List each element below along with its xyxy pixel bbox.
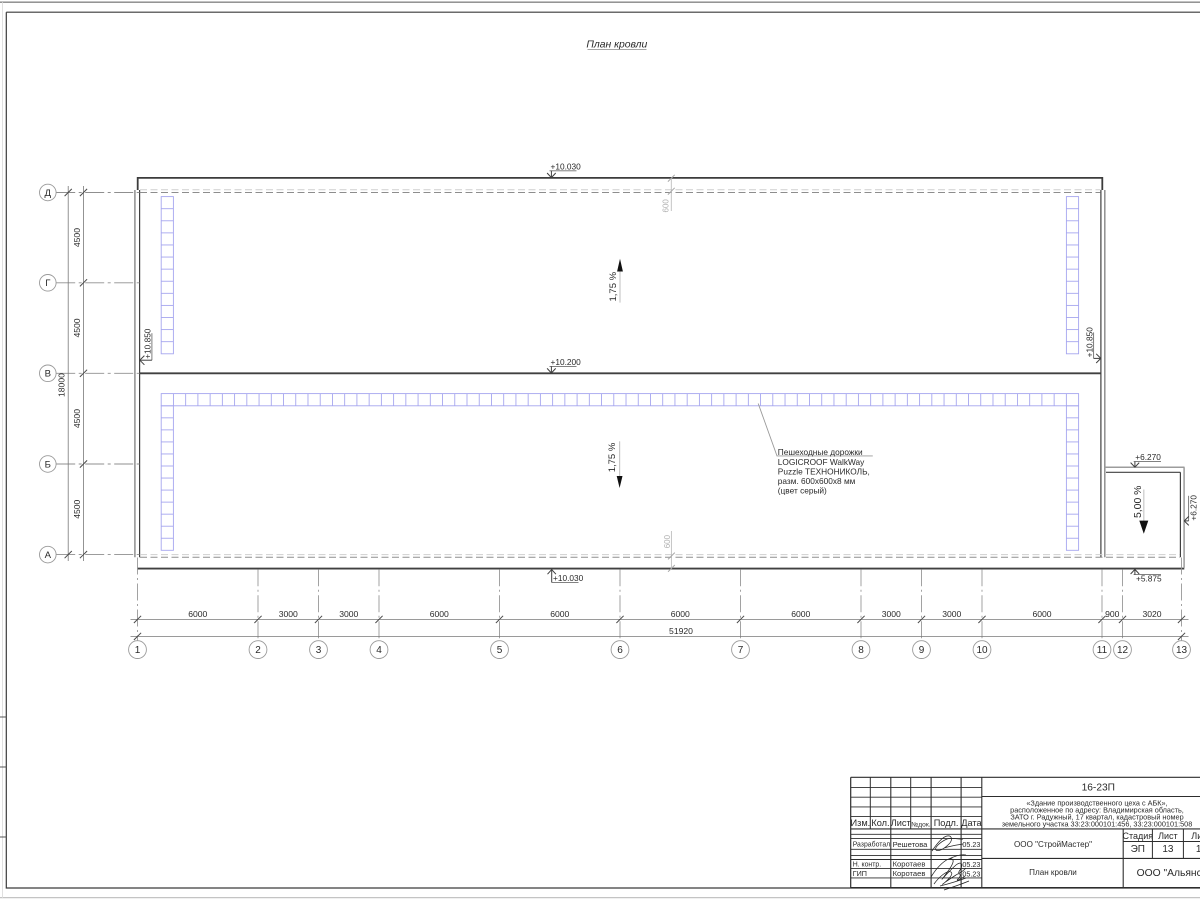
svg-text:05.23: 05.23 [962, 860, 980, 869]
svg-text:Д: Д [45, 188, 52, 199]
svg-text:11: 11 [1097, 645, 1108, 656]
svg-text:ГИП: ГИП [853, 869, 867, 878]
svg-text:+6.270: +6.270 [1188, 495, 1198, 521]
svg-text:8: 8 [858, 645, 864, 656]
svg-text:3000: 3000 [942, 609, 961, 619]
svg-text:600: 600 [662, 199, 671, 213]
svg-text:+5.875: +5.875 [1136, 574, 1162, 584]
svg-text:4500: 4500 [72, 318, 82, 337]
svg-text:1: 1 [1196, 844, 1200, 855]
svg-text:+10.030: +10.030 [553, 573, 584, 583]
svg-text:9: 9 [919, 645, 925, 656]
svg-text:3020: 3020 [1142, 609, 1161, 619]
svg-text:2: 2 [255, 645, 261, 656]
svg-text:05.23: 05.23 [962, 869, 980, 878]
svg-text:3: 3 [316, 645, 322, 656]
svg-text:+10.850: +10.850 [1084, 327, 1094, 358]
svg-text:Puzzle ТЕХНОНИКОЛЬ,: Puzzle ТЕХНОНИКОЛЬ, [778, 466, 870, 476]
svg-text:600: 600 [663, 534, 672, 548]
svg-text:51920: 51920 [669, 626, 693, 636]
svg-text:План кровли: План кровли [1029, 868, 1077, 877]
svg-text:4500: 4500 [72, 499, 82, 518]
svg-text:Коротаев: Коротаев [893, 869, 926, 878]
svg-text:6000: 6000 [671, 609, 690, 619]
svg-text:6: 6 [617, 645, 623, 656]
svg-text:Изм.: Изм. [851, 818, 871, 828]
svg-text:6000: 6000 [430, 609, 449, 619]
svg-text:3000: 3000 [279, 609, 298, 619]
svg-text:(цвет серый): (цвет серый) [778, 486, 827, 496]
svg-text:13: 13 [1162, 844, 1174, 855]
svg-text:05.23: 05.23 [962, 840, 980, 849]
svg-text:6000: 6000 [1032, 609, 1051, 619]
svg-text:13: 13 [1176, 645, 1188, 656]
svg-text:ООО "СтройМастер": ООО "СтройМастер" [1014, 840, 1092, 849]
svg-text:ООО "Альянс": ООО "Альянс" [1137, 868, 1200, 879]
svg-text:6000: 6000 [550, 609, 569, 619]
svg-text:+6.270: +6.270 [1135, 452, 1161, 462]
svg-text:1,75 %: 1,75 % [607, 442, 618, 472]
svg-text:4: 4 [376, 645, 382, 656]
svg-text:6000: 6000 [791, 609, 810, 619]
svg-text:1: 1 [135, 645, 141, 656]
svg-text:LOGICROOF WalkWay: LOGICROOF WalkWay [778, 457, 865, 467]
svg-text:7: 7 [738, 645, 744, 656]
svg-text:Подл.: Подл. [934, 818, 959, 828]
svg-text:ЭП: ЭП [1131, 844, 1145, 855]
svg-text:16-23П: 16-23П [1082, 783, 1115, 794]
svg-text:5,00 %: 5,00 % [1133, 486, 1144, 518]
svg-text:Коротаев: Коротаев [893, 860, 926, 869]
svg-text:Б: Б [45, 459, 51, 470]
svg-text:№док.: №док. [911, 822, 930, 829]
svg-text:+10.200: +10.200 [551, 357, 582, 367]
svg-text:3000: 3000 [882, 609, 901, 619]
svg-text:10: 10 [976, 645, 988, 656]
svg-text:План кровли: План кровли [586, 40, 647, 51]
svg-text:+10.850: +10.850 [143, 328, 153, 359]
svg-text:разм. 600х600х8 мм: разм. 600х600х8 мм [778, 476, 856, 486]
svg-text:земельного участка 33:23:00010: земельного участка 33:23:000101:456, 33:… [1002, 820, 1193, 829]
svg-text:4500: 4500 [72, 409, 82, 428]
svg-text:Лис: Лис [1191, 831, 1200, 841]
svg-text:3000: 3000 [339, 609, 358, 619]
svg-text:900: 900 [1105, 609, 1120, 619]
svg-text:Разработал: Разработал [853, 841, 891, 849]
svg-text:Пешеходные дорожки: Пешеходные дорожки [778, 447, 863, 457]
svg-text:Лист: Лист [891, 818, 912, 828]
svg-text:В: В [45, 369, 51, 380]
svg-text:Дата: Дата [961, 818, 982, 828]
svg-text:12: 12 [1117, 645, 1129, 656]
svg-text:Кол.: Кол. [871, 818, 889, 828]
svg-text:18000: 18000 [57, 373, 67, 397]
svg-text:5: 5 [497, 645, 503, 656]
svg-text:Н. контр.: Н. контр. [853, 861, 882, 868]
svg-text:Лист: Лист [1158, 831, 1178, 841]
svg-text:Решетова: Решетова [893, 840, 929, 849]
svg-text:6000: 6000 [188, 609, 207, 619]
svg-text:4500: 4500 [72, 228, 82, 247]
svg-text:Стадия: Стадия [1122, 831, 1153, 841]
svg-text:1,75 %: 1,75 % [608, 271, 619, 301]
svg-text:Г: Г [45, 278, 51, 289]
svg-text:+10.030: +10.030 [551, 161, 582, 171]
svg-text:А: А [45, 550, 52, 561]
